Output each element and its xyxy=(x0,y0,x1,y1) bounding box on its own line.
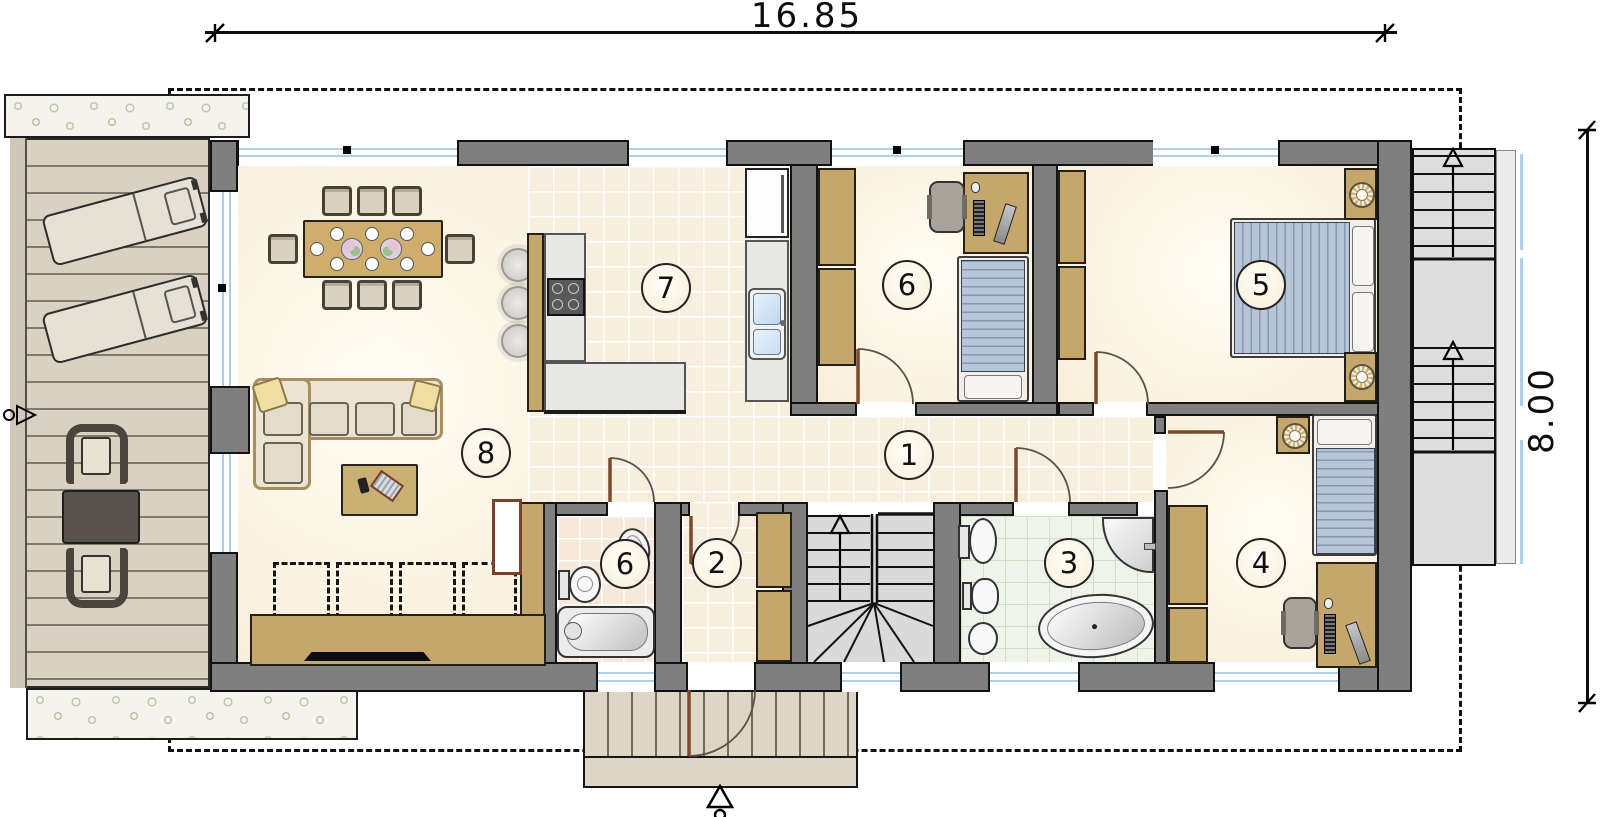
wall xyxy=(210,140,238,192)
toilet xyxy=(558,566,602,604)
porch-step xyxy=(583,756,858,788)
wardrobe xyxy=(1058,170,1086,264)
faucet xyxy=(1144,543,1156,550)
window-mullion xyxy=(1211,146,1219,154)
dimension-line-right xyxy=(1586,130,1589,703)
kitchen-sink xyxy=(748,288,786,360)
office-chair xyxy=(929,181,965,233)
window xyxy=(210,454,238,552)
room-label-bathroom: 3 xyxy=(1044,538,1094,588)
place-setting xyxy=(330,227,344,241)
lounger-headrest xyxy=(163,284,197,324)
wardrobe xyxy=(756,590,792,662)
wall xyxy=(754,662,842,692)
window-mullion xyxy=(218,284,226,292)
toilet-bowl xyxy=(969,518,997,564)
stairwell-floor xyxy=(808,516,933,662)
sink-basin xyxy=(753,293,781,325)
fridge xyxy=(745,168,789,238)
floor-plan: 16.85 8.00 1 2 3 4 5 6 6 7 8 xyxy=(0,0,1601,817)
dining-chair xyxy=(322,280,352,310)
chair-cushion xyxy=(81,437,111,475)
chair-arm xyxy=(927,195,932,219)
bed-duvet xyxy=(1316,448,1375,554)
balcony-railing-glass xyxy=(1520,154,1523,250)
window-mullion xyxy=(343,146,351,154)
window xyxy=(598,662,654,692)
wall xyxy=(1058,402,1094,416)
wall xyxy=(915,402,1058,416)
lounger-headrest xyxy=(163,186,197,226)
single-bed xyxy=(1312,414,1377,556)
wall xyxy=(654,502,682,664)
wardrobe xyxy=(818,268,856,366)
window xyxy=(842,662,900,692)
terrace-chair xyxy=(66,548,128,608)
dining-chair xyxy=(445,234,475,264)
window-mullion xyxy=(893,146,901,154)
wall xyxy=(790,164,818,416)
single-bed xyxy=(957,256,1029,402)
desk xyxy=(963,172,1029,254)
wall xyxy=(1068,502,1138,516)
toilet xyxy=(958,518,998,566)
dining-chair xyxy=(392,186,422,216)
sink-basin xyxy=(753,329,781,355)
wall xyxy=(1078,662,1215,692)
bed-duvet xyxy=(961,260,1025,372)
place-setting xyxy=(365,257,379,271)
bed-pillow xyxy=(1317,419,1372,445)
dining-chair xyxy=(392,280,422,310)
room-label-office-bedroom: 6 xyxy=(882,260,932,310)
window xyxy=(629,140,726,166)
greenery-strip-top xyxy=(4,94,250,138)
dining-chair xyxy=(322,186,352,216)
fridge-handle xyxy=(781,175,784,233)
kitchen-counter-panel xyxy=(527,233,544,412)
office-chair xyxy=(1283,597,1317,649)
room-label-hallway: 1 xyxy=(884,430,934,480)
sofa-cushion xyxy=(355,402,395,436)
wall xyxy=(1154,416,1166,434)
kitchen-counter xyxy=(544,362,686,412)
wardrobe xyxy=(756,512,792,588)
keyboard xyxy=(1324,614,1336,654)
bidet xyxy=(964,622,1000,656)
dimension-label-width: 16.85 xyxy=(742,0,872,36)
monitor xyxy=(993,203,1017,245)
wardrobe xyxy=(1168,607,1208,663)
book xyxy=(370,470,404,502)
room-label-kitchen: 7 xyxy=(641,263,691,313)
kitchen-counter-edge xyxy=(544,410,686,414)
lounger-fold-line xyxy=(132,194,146,241)
burner xyxy=(568,299,579,310)
bed-pillow xyxy=(1352,292,1374,352)
room-label-living-room: 8 xyxy=(461,428,511,478)
table-centerpiece xyxy=(380,238,402,260)
burner xyxy=(552,299,563,310)
bench-column xyxy=(520,502,545,616)
bidet-bowl xyxy=(971,578,999,614)
room-label-bedroom-master: 5 xyxy=(1236,260,1286,310)
window xyxy=(990,662,1078,692)
keyboard xyxy=(973,200,985,236)
remote xyxy=(357,477,370,494)
desk xyxy=(1316,562,1377,668)
tv-unit xyxy=(304,652,431,661)
bidet xyxy=(962,578,1000,614)
bed-pillow xyxy=(964,375,1022,399)
wall xyxy=(790,402,857,416)
lounger-fold-line xyxy=(132,292,146,339)
chair-arm xyxy=(1281,611,1286,635)
wall xyxy=(963,140,1155,166)
fireplace-box xyxy=(492,499,522,575)
table-centerpiece xyxy=(341,238,363,260)
terrace-table xyxy=(62,490,140,544)
bed-pillow xyxy=(1352,226,1374,286)
place-setting xyxy=(310,242,324,256)
dining-chair xyxy=(357,280,387,310)
wall xyxy=(654,662,688,692)
burner xyxy=(552,283,563,294)
greenery-strip-bottom xyxy=(26,688,358,740)
table-lamp xyxy=(1349,364,1375,390)
sofa-cushion xyxy=(309,402,349,436)
table-lamp xyxy=(1349,182,1375,208)
coffee-table xyxy=(341,464,418,516)
stove xyxy=(547,278,585,316)
place-setting xyxy=(400,257,414,271)
dining-chair xyxy=(357,186,387,216)
dimension-label-height: 8.00 xyxy=(1522,350,1562,470)
mouse xyxy=(971,182,980,193)
room-label-wc: 6 xyxy=(600,539,650,589)
room-label-bedroom-right: 4 xyxy=(1236,538,1286,588)
terrace-edge-board xyxy=(10,138,27,688)
terrace-chair xyxy=(66,424,128,484)
chair-arm xyxy=(1314,611,1319,635)
exterior-stairs xyxy=(1412,148,1496,566)
place-setting xyxy=(421,242,435,256)
faucet xyxy=(780,320,786,326)
wall xyxy=(933,502,961,664)
dining-chair xyxy=(268,234,298,264)
monitor xyxy=(1345,621,1371,665)
wall xyxy=(900,662,990,692)
tub-faucet xyxy=(564,622,582,640)
wall xyxy=(210,386,250,454)
wall xyxy=(210,662,598,692)
balcony-side-strip xyxy=(1496,150,1516,564)
wardrobe xyxy=(1168,505,1208,605)
wall xyxy=(1154,490,1168,664)
bathtub xyxy=(557,606,655,658)
toilet-seat xyxy=(577,576,593,592)
wardrobe xyxy=(1058,266,1086,360)
entry-arrow-icon xyxy=(708,786,732,817)
chair-arm xyxy=(962,195,967,219)
room-label-entry-hall: 2 xyxy=(692,538,742,588)
hallway-floor xyxy=(528,416,1154,502)
place-setting xyxy=(400,227,414,241)
wardrobe xyxy=(818,168,856,266)
place-setting xyxy=(365,227,379,241)
wall xyxy=(457,140,629,166)
wall xyxy=(1377,140,1412,692)
sofa-cushion xyxy=(263,442,303,484)
burner xyxy=(568,283,579,294)
wall xyxy=(726,140,832,166)
table-lamp xyxy=(1282,423,1308,449)
wall xyxy=(1032,164,1058,416)
bidet-bowl xyxy=(968,622,998,655)
place-setting xyxy=(330,257,344,271)
mouse xyxy=(1324,598,1333,609)
chair-cushion xyxy=(81,555,111,593)
